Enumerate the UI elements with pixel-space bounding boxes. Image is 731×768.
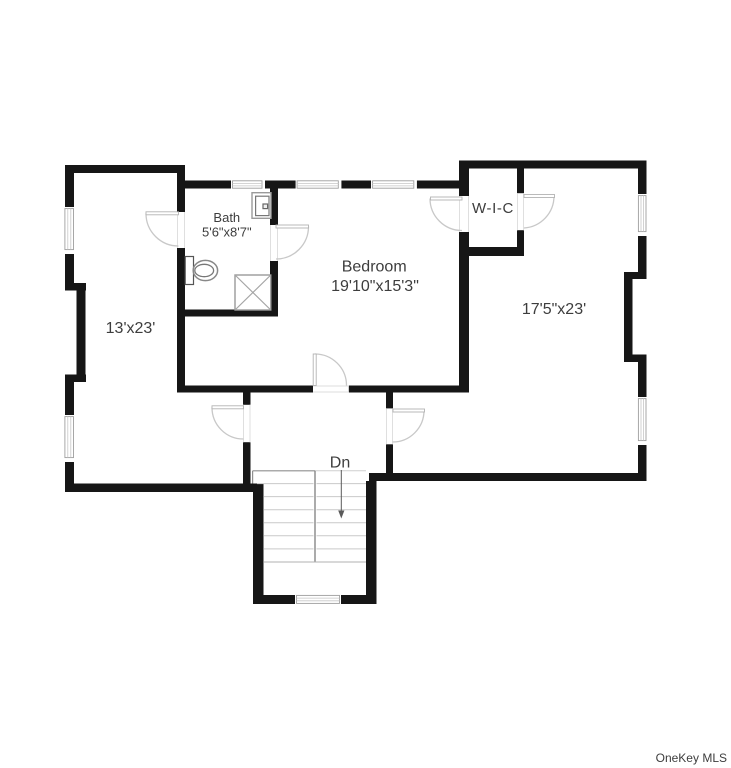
svg-text:W-I-C: W-I-C (472, 200, 514, 217)
svg-text:Bath: Bath (213, 210, 240, 225)
svg-text:19'10"x15'3": 19'10"x15'3" (331, 278, 419, 295)
svg-text:Dn: Dn (330, 455, 350, 472)
svg-text:Bedroom: Bedroom (342, 258, 407, 275)
svg-text:OneKey MLS: OneKey MLS (656, 751, 727, 765)
svg-text:13'x23': 13'x23' (106, 320, 156, 337)
svg-text:5'6"x8'7": 5'6"x8'7" (202, 224, 252, 239)
svg-text:17'5"x23': 17'5"x23' (522, 301, 586, 318)
